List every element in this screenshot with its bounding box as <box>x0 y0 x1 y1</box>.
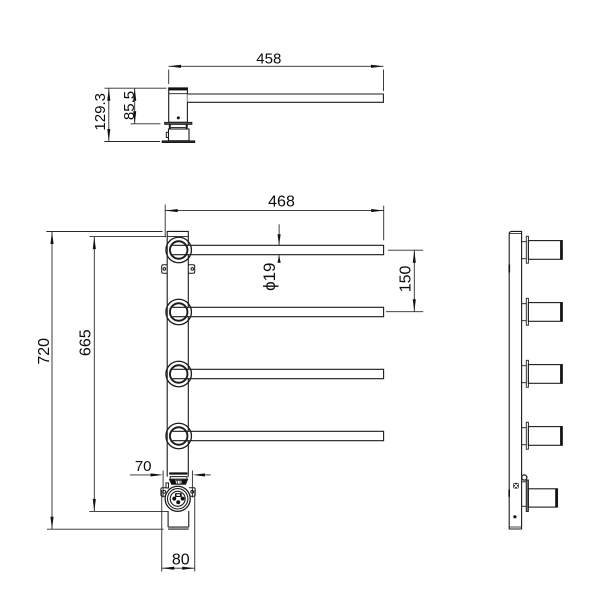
svg-text:720: 720 <box>36 338 53 365</box>
svg-text:665: 665 <box>78 329 95 356</box>
svg-text:85.5: 85.5 <box>121 91 138 120</box>
svg-text:ϕ19: ϕ19 <box>260 262 279 290</box>
svg-text:150: 150 <box>398 265 415 292</box>
svg-text:80: 80 <box>172 552 190 569</box>
svg-text:70: 70 <box>135 458 152 475</box>
svg-text:468: 468 <box>268 194 295 211</box>
svg-text:129.3: 129.3 <box>92 93 109 131</box>
svg-text:458: 458 <box>256 51 281 68</box>
